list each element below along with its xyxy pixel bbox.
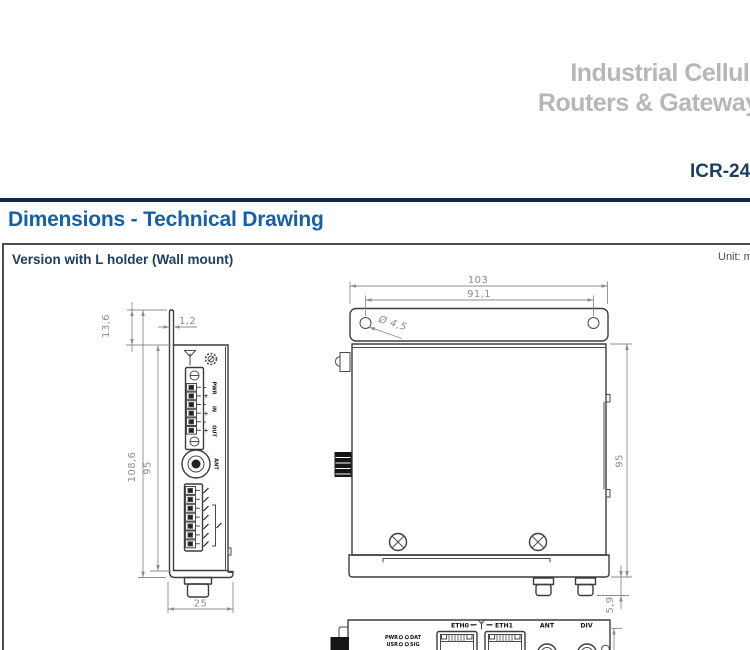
svg-text:91,1: 91,1: [467, 289, 491, 300]
reset-gear-icon: [206, 354, 217, 365]
svg-text:25: 25: [194, 599, 208, 610]
dim-bottom-clipped: [610, 629, 622, 650]
dim-foot-height: 5,9: [597, 565, 629, 614]
datasheet-page: Industrial Cellular Routers & Gateways I…: [0, 0, 750, 650]
label-in: IN: [211, 406, 217, 412]
foot-right: [576, 578, 596, 596]
svg-text:108,6: 108,6: [127, 452, 138, 483]
rj45-eth0: [437, 632, 477, 650]
label-pwr: PWR: [211, 381, 217, 394]
label-eth0: ETH0: [451, 623, 470, 630]
mounting-hole-right: [588, 318, 599, 329]
label-ant: ANT: [540, 623, 555, 630]
div-connector-bottom: [578, 644, 597, 650]
antenna-symbol-icon: [185, 351, 196, 366]
label-div: DIV: [580, 623, 592, 630]
svg-text:5,9: 5,9: [605, 596, 616, 613]
pin-mark: -: [204, 419, 207, 426]
label-led-pwr: PWR: [385, 635, 398, 641]
bottom-view: ETH0 ETH1 ANT DIV PWR DAT USR SIG: [331, 620, 623, 650]
serial-pin-ticks: [204, 488, 209, 547]
svg-text:Ø 4,5: Ø 4,5: [376, 313, 408, 333]
front-view: Ø 4,5: [335, 275, 633, 614]
case-screw-right: [530, 534, 547, 551]
bracket-bottom-plate: [170, 572, 234, 578]
dim-body-height: 95: [143, 345, 172, 571]
serial-terminal-block: [185, 484, 222, 551]
label-led-sig: SIG: [410, 642, 420, 648]
pin-mark: -: [204, 385, 207, 392]
pin-mark: +: [204, 410, 209, 417]
svg-text:95: 95: [143, 461, 154, 475]
dim-total-height: 108,6: [127, 310, 166, 578]
foot-left: [534, 578, 554, 596]
holder-clip: [336, 353, 351, 372]
side-latch: [228, 548, 231, 555]
sma-connector-front: [335, 452, 352, 477]
side-view: - + - + - + PWR IN OUT ANT: [101, 302, 233, 613]
dim-lip-thickness: 1,2: [158, 316, 197, 329]
dim-height-front: 95: [610, 344, 632, 577]
svg-text:1,2: 1,2: [179, 316, 196, 327]
svg-text:13,6: 13,6: [101, 314, 112, 338]
dim-hole-diameter: Ø 4,5: [369, 313, 408, 338]
bracket-band-front: [349, 555, 609, 577]
bottom-left-connector: [331, 627, 350, 650]
power-terminal-block: - + - + - + PWR IN OUT: [186, 368, 217, 450]
front-body: [352, 344, 606, 555]
label-led-usr: USR: [386, 642, 398, 648]
panel-screw: [602, 645, 610, 650]
ant-connector-bottom: [538, 644, 557, 650]
side-foot: [185, 578, 212, 598]
label-led-dat: DAT: [410, 635, 422, 641]
svg-text:95: 95: [615, 454, 626, 468]
label-eth1: ETH1: [495, 623, 513, 630]
label-ant-side: ANT: [213, 458, 219, 470]
pin-mark: -: [204, 402, 207, 409]
pin-mark: +: [204, 428, 209, 435]
ant-connector: ANT: [182, 450, 219, 478]
pin-mark: +: [204, 393, 209, 400]
led-panel: PWR DAT USR SIG: [385, 635, 422, 648]
antenna-divider-icon: [478, 620, 485, 630]
rj45-eth1: [485, 632, 525, 650]
dim-hole-spacing: 91,1: [366, 289, 594, 316]
svg-text:103: 103: [468, 275, 488, 286]
case-screw-left: [390, 534, 407, 551]
technical-drawing-svg: - + - + - + PWR IN OUT ANT: [0, 0, 750, 650]
pin-group-bracket: [213, 505, 216, 546]
label-out: OUT: [211, 425, 217, 437]
